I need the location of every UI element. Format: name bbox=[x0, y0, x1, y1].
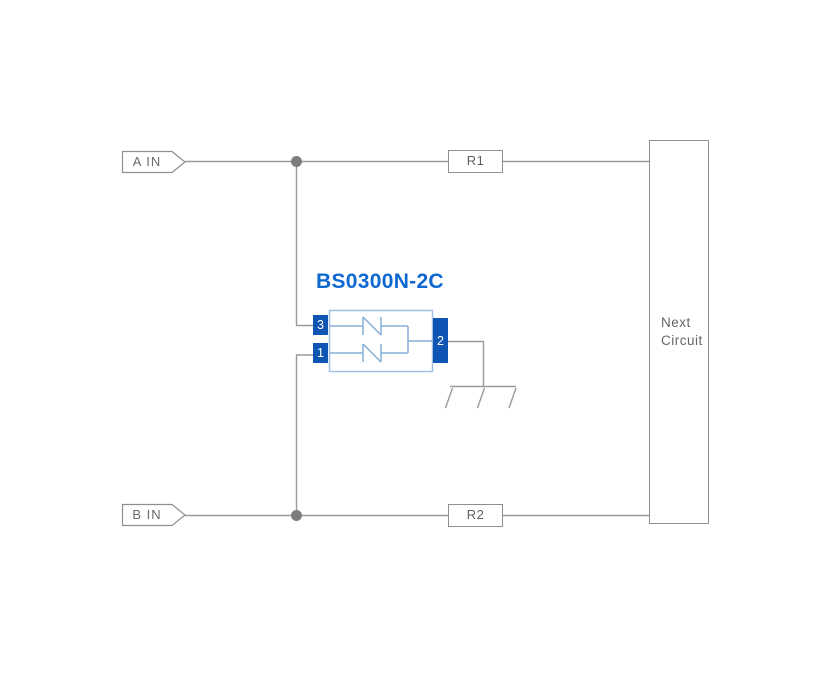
component-title: BS0300N-2C bbox=[316, 270, 444, 294]
resistor-r2: R2 bbox=[448, 504, 503, 527]
pin-1: 1 bbox=[313, 343, 328, 363]
input-label-b: B IN bbox=[122, 504, 172, 526]
next-circuit-line1: Next bbox=[661, 314, 703, 332]
pin-2: 2 bbox=[433, 318, 448, 363]
next-circuit-label: Next Circuit bbox=[661, 314, 703, 350]
pin-3: 3 bbox=[313, 315, 328, 335]
next-circuit-line2: Circuit bbox=[661, 332, 703, 350]
input-label-a: A IN bbox=[122, 151, 172, 173]
wire-a-branch bbox=[297, 162, 314, 326]
ground-icon bbox=[446, 387, 517, 409]
next-circuit-box: Next Circuit bbox=[649, 140, 709, 524]
junction-dot-b bbox=[291, 510, 302, 521]
circuit-diagram: A IN B IN R1 R2 Next Circuit BS0300N-2C … bbox=[0, 0, 832, 675]
junction-dot-a bbox=[291, 156, 302, 167]
wire-b-branch bbox=[297, 355, 314, 516]
resistor-r1: R1 bbox=[448, 150, 503, 173]
wire-pin2-to-ground bbox=[448, 342, 484, 387]
input-flags bbox=[123, 152, 186, 526]
